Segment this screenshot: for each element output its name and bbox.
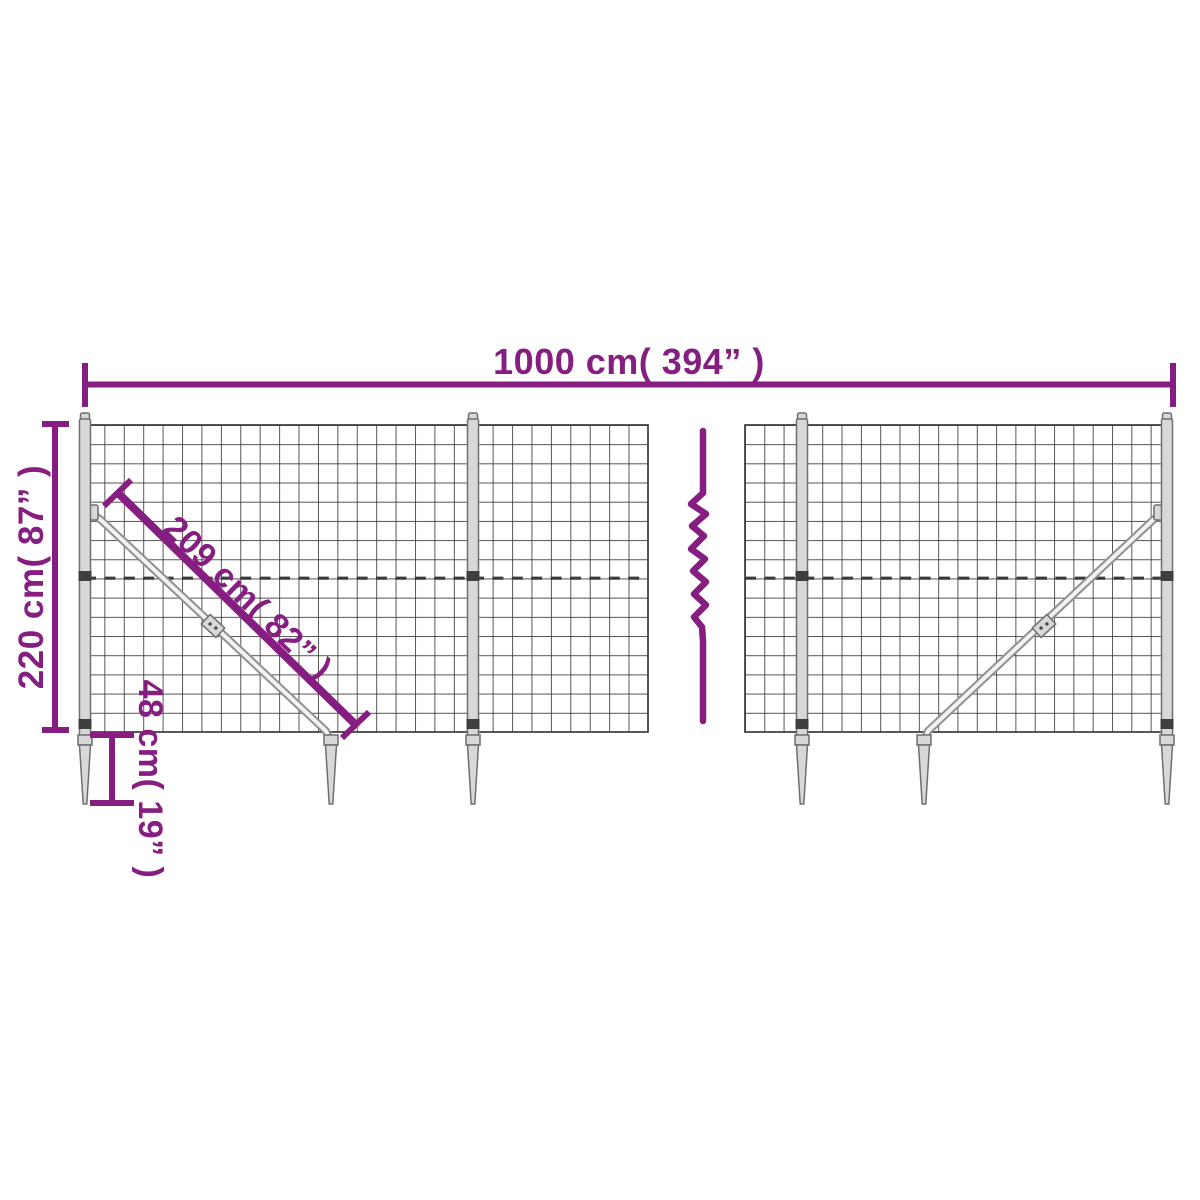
ground-spike: [466, 735, 480, 804]
ground-spike: [795, 735, 809, 804]
ground-spike: [917, 735, 931, 804]
diagram-canvas: 1000 cm( 394” ) 220 cm( 87” ) 209 cm( 82…: [0, 0, 1200, 1200]
ground-spike: [78, 735, 92, 804]
fence-post: [796, 413, 809, 740]
anchor-depth-dimension-label: 48 cm( 19” ): [131, 680, 169, 879]
break-zigzag-line: [691, 431, 706, 721]
ground-spike: [324, 735, 338, 804]
fence-post: [79, 413, 92, 740]
fence-post: [1161, 413, 1174, 740]
height-dimension-label: 220 cm( 87” ): [12, 465, 51, 689]
fence-post: [467, 413, 480, 740]
ground-spike: [1160, 735, 1174, 804]
width-dimension-label: 1000 cm( 394” ): [493, 341, 765, 382]
